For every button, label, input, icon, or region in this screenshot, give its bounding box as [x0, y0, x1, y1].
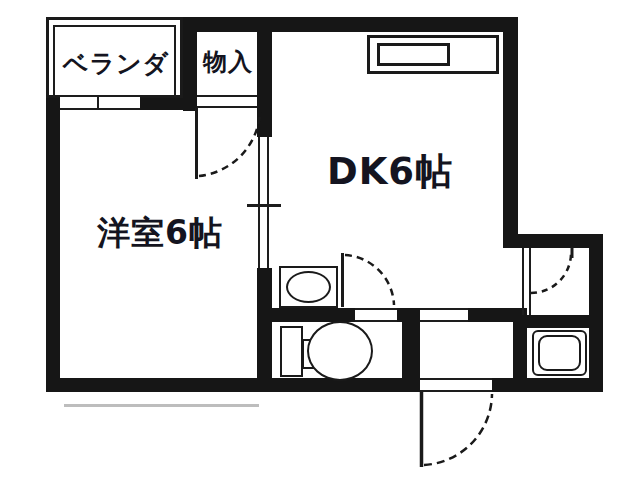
washroom-door-arc [345, 255, 394, 305]
floorplan: ベランダ 物入 洋室6帖 DK6帖 [0, 0, 640, 480]
bath-door-arc [531, 253, 571, 293]
entrance-door-arc [424, 394, 492, 465]
veranda-label: ベランダ [63, 47, 169, 80]
closet-label: 物入 [203, 46, 253, 78]
dk-label: DK6帖 [327, 147, 453, 197]
closet-door-arc [199, 112, 260, 176]
western-room-label: 洋室6帖 [97, 211, 223, 256]
